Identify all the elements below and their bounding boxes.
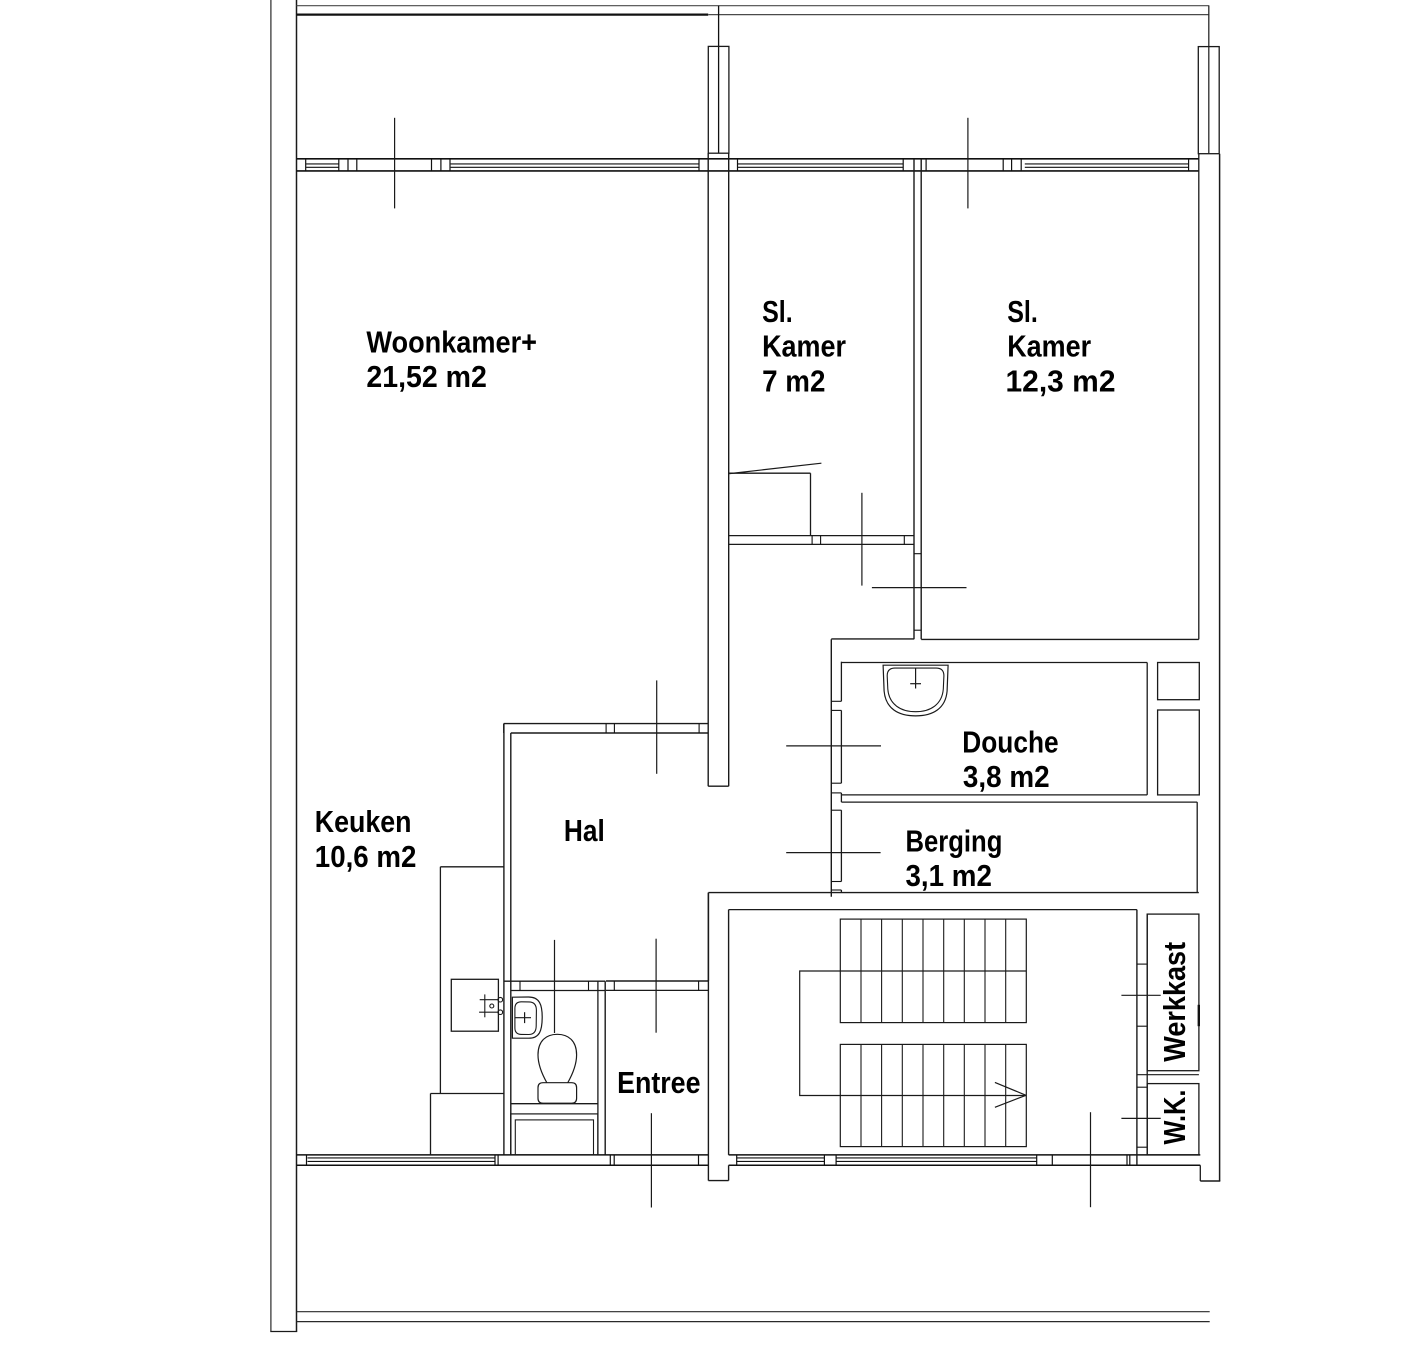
svg-text:W.K.: W.K. <box>1157 1090 1192 1145</box>
svg-text:21,52 m2: 21,52 m2 <box>366 359 487 394</box>
svg-text:Kamer: Kamer <box>1007 329 1091 364</box>
svg-text:Woonkamer+: Woonkamer+ <box>366 325 537 360</box>
svg-text:Berging: Berging <box>906 823 1003 858</box>
svg-text:Keuken: Keuken <box>315 804 412 839</box>
svg-text:Kamer: Kamer <box>762 329 846 364</box>
svg-text:7 m2: 7 m2 <box>762 364 825 399</box>
svg-text:3,8 m2: 3,8 m2 <box>963 759 1050 794</box>
svg-text:3,1 m2: 3,1 m2 <box>906 858 992 893</box>
svg-text:Entree: Entree <box>617 1065 700 1100</box>
svg-text:Sl.: Sl. <box>1007 294 1038 329</box>
svg-text:12,3 m2: 12,3 m2 <box>1006 364 1116 399</box>
svg-text:Hal: Hal <box>564 813 605 848</box>
svg-text:Sl.: Sl. <box>762 294 793 329</box>
svg-text:Werkkast: Werkkast <box>1157 942 1192 1062</box>
svg-text:Douche: Douche <box>962 725 1058 760</box>
svg-text:10,6 m2: 10,6 m2 <box>315 839 417 874</box>
